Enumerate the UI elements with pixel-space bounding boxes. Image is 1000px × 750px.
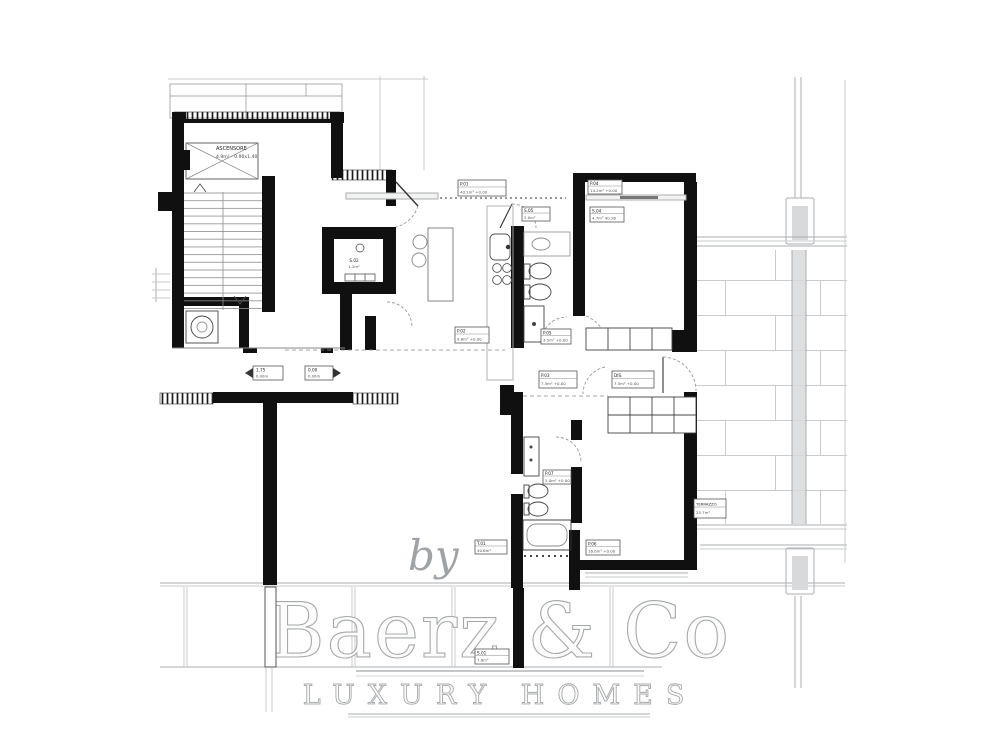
tag-line1: S.05 <box>524 208 534 213</box>
bath2-fixtures <box>523 437 571 550</box>
watermark-tagline: LUXURY HOMES <box>303 680 698 711</box>
stove-icon <box>493 264 512 285</box>
tag-terr1: T.01 40.6m² <box>475 540 507 554</box>
level-value: 0.00 <box>308 368 318 373</box>
tag-line1: T.01 <box>476 541 486 546</box>
island-stool-icon <box>413 235 427 249</box>
tag-line2: 3.5m² +0.00 <box>543 338 568 343</box>
tag-line1: TERRAZZO <box>695 502 717 507</box>
tag-line1: P.07 <box>545 471 554 476</box>
tag-line1: S.01 <box>477 651 487 656</box>
kitchen-counter-icon <box>487 206 513 380</box>
tag-line2: 5.0m² +0.00 <box>545 478 570 483</box>
tag-line2: 7.8m² <box>477 658 489 663</box>
tag-hall: P.03 7.5m² +0.00 <box>539 371 577 388</box>
bathtub-icon <box>523 520 571 550</box>
tag-line2: 16.0m² +0.00 <box>588 549 616 554</box>
tag-terr2: S.01 7.8m² <box>475 649 509 664</box>
tag-line1: S.04 <box>592 209 602 214</box>
tag-living: P.01 40.2m² +0.00 <box>458 180 506 196</box>
tag-line1: P.01 <box>460 182 469 187</box>
floor-plan-svg: by Baerz & Co LUXURY HOMES <box>0 0 1000 750</box>
tag-line2: 9.6m² +0.00 <box>457 337 482 342</box>
tag-bed1: P.04 14.2m² +0.00 <box>588 180 622 194</box>
tag-line2: 40.6m² <box>477 548 491 553</box>
elevator-sublabel: 4.9m² - 0.90x1.40 <box>216 154 257 160</box>
cabinet-icon <box>524 437 539 476</box>
tag-bathv: S.05 2.0m² <box>522 207 550 221</box>
level-subvalue: 0.00m <box>308 374 320 379</box>
level-marker: 1.75 0.00m <box>245 366 283 380</box>
level-marker: 0.00 0.00m <box>305 366 341 380</box>
tag-line1: P.04 <box>590 181 599 186</box>
tag-bath2: P.07 5.0m² +0.00 <box>543 470 571 484</box>
store-tag: S.02 <box>349 258 359 263</box>
tag-terrace: TERRAZZO 25.7m² <box>694 499 726 518</box>
wardrobe-icon <box>608 397 696 433</box>
floor-plan-page: by Baerz & Co LUXURY HOMES <box>0 0 1000 750</box>
wardrobe-icon <box>586 328 672 350</box>
tag-line2: 25.7m² <box>696 510 710 515</box>
tag-line2: 7.5m² +0.00 <box>541 381 566 386</box>
tag-line1: P.06 <box>588 542 597 547</box>
tag-line1: P.02 <box>457 329 466 334</box>
level-value: 1.75 <box>256 368 266 373</box>
elevator-label: ASCENSORE <box>216 146 247 152</box>
tag-line2: 14.2m² +0.00 <box>590 188 618 193</box>
door-swing <box>556 437 581 462</box>
door-swing <box>387 302 412 327</box>
bath1-fixtures <box>524 232 570 342</box>
door-swing <box>583 367 605 394</box>
island-stool-icon <box>412 253 426 267</box>
tag-line2: 40.2m² +0.00 <box>460 190 488 195</box>
tag-hall2: DIS. 7.5m² +0.00 <box>612 371 654 388</box>
tag-line1: P.03 <box>541 373 550 378</box>
tag-line2: 2.0m² <box>524 215 536 220</box>
terrace-pavers <box>695 250 847 524</box>
tag-bath1: P.05 3.5m² +0.00 <box>541 329 571 344</box>
watermark-by: by <box>408 531 460 580</box>
tag-line1: P.05 <box>543 331 552 336</box>
wall-outline-strip <box>265 587 276 667</box>
tag-bed1b: S.04 4.7m² 40.26 <box>590 207 624 222</box>
door-swing <box>663 357 696 391</box>
stair-core <box>182 143 262 343</box>
tag-kitchen: P.02 9.6m² +0.00 <box>455 327 489 343</box>
watermark: by Baerz & Co LUXURY HOMES <box>269 531 731 711</box>
vanity-icon <box>524 232 570 256</box>
store-subtag: 1.2m² <box>348 264 360 269</box>
tag-bed2: P.06 16.0m² +0.00 <box>586 540 620 555</box>
tag-line2: 4.7m² 40.26 <box>592 216 616 221</box>
level-subvalue: 0.00m <box>256 374 268 379</box>
stair-up-arrow-icon <box>194 184 206 192</box>
tag-line2: 7.5m² +0.00 <box>614 381 639 386</box>
kitchen-island-icon <box>428 228 453 301</box>
tag-line1: DIS. <box>614 373 622 378</box>
